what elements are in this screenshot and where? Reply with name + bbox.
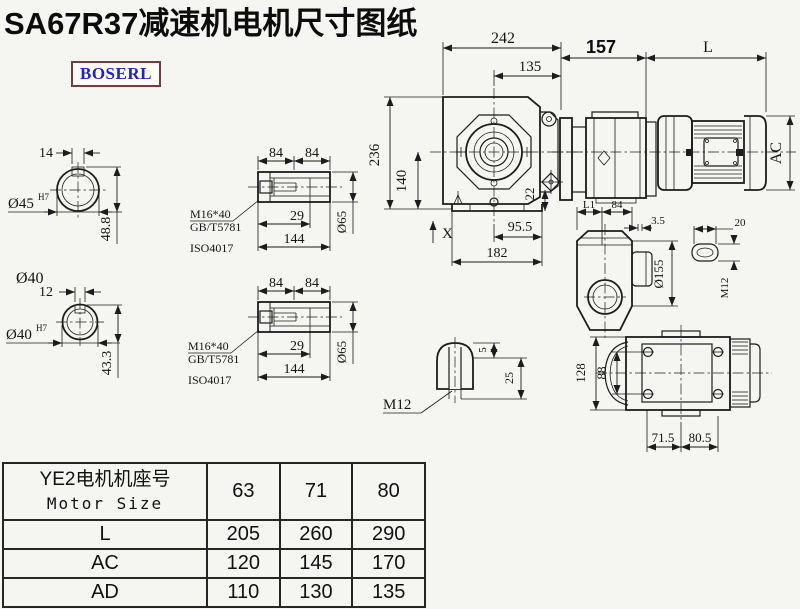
table-header-en: Motor Size <box>4 492 206 515</box>
dim-front-foot: 22 <box>522 188 537 201</box>
view-flange-side: L1 84 Ø155 3.5 20 M12 <box>577 199 746 338</box>
dimension-drawing: 14 Ø45 H7 48.8 Ø40 12 Ø40 H7 43.3 84 84 … <box>0 0 800 460</box>
dim-front-overall-height: 236 <box>367 143 383 166</box>
table-size-71: 71 <box>280 463 353 520</box>
label-standard-gb: GB/T5781 <box>190 220 241 234</box>
table-header-label: YE2电机机座号 Motor Size <box>3 463 207 520</box>
motor-size-table: YE2电机机座号 Motor Size 63 71 80 L 205 260 2… <box>2 462 426 608</box>
dim-shaft-height-45: 48.8 <box>99 217 114 242</box>
dim-bore-45: Ø45 <box>8 196 34 212</box>
view-gearbox-front: 242 135 236 140 22 X 95.5 182 <box>367 30 585 266</box>
value-L-71: 260 <box>280 520 353 549</box>
dim-bore-40: Ø40 <box>6 327 32 343</box>
dim-front-center-height: 140 <box>394 170 410 193</box>
value-AD-63: 110 <box>207 578 280 607</box>
dim-bore-45-fit: H7 <box>38 192 49 202</box>
dim-hub-length: 144 <box>284 232 305 247</box>
dim-side-motor-height: AC <box>768 142 785 164</box>
dim-keyway-width-40: 12 <box>39 285 53 300</box>
dim-bottom-foot-left: 71.5 <box>652 430 675 445</box>
dim-hub-dia2: Ø65 <box>334 341 349 363</box>
dim-bottom-overall-depth: 128 <box>573 363 588 383</box>
table-size-63: 63 <box>207 463 280 520</box>
dim-bottom-bolt-spacing: 88 <box>594 367 609 380</box>
row-label-AD: AD <box>3 578 207 607</box>
label-standard-iso: ISO4017 <box>190 241 233 255</box>
view-hollow-shaft-top: 84 84 M16*40 GB/T5781 ISO4017 29 144 Ø65 <box>190 146 358 255</box>
dim-keyway-width-45: 14 <box>39 146 53 161</box>
value-AD-71: 130 <box>280 578 353 607</box>
dim-bore-40-fit: H7 <box>36 323 47 333</box>
dim-side-motor-length: L <box>703 39 713 56</box>
dim-thread-depth: 29 <box>290 209 304 224</box>
dim-hub-len-b: 84 <box>305 146 319 161</box>
view-plug-detail: 5 25 M12 <box>383 337 527 413</box>
dim-flange-hub-len: L1 <box>583 199 595 211</box>
table-row-AD: AD 110 130 135 <box>3 578 425 607</box>
row-label-L: L <box>3 520 207 549</box>
value-AC-63: 120 <box>207 549 280 578</box>
dim-bottom-foot-right: 80.5 <box>689 430 712 445</box>
dim-thread-depth2: 29 <box>290 339 304 354</box>
dim-plug-lip: 5 <box>477 347 489 353</box>
table-size-80: 80 <box>352 463 425 520</box>
dim-flange-hub-width: 84 <box>612 199 624 211</box>
view-gearmotor-side: 157 L AC <box>552 37 796 203</box>
label-standard-iso2: ISO4017 <box>188 373 231 387</box>
dim-front-center-to-edge: 95.5 <box>508 220 533 235</box>
dim-front-base-width: 182 <box>487 246 508 261</box>
value-L-63: 205 <box>207 520 280 549</box>
dim-slot-gap: 3.5 <box>651 215 665 227</box>
dim-plug-depth: 25 <box>502 372 516 384</box>
dim-front-overall-width: 242 <box>491 30 515 47</box>
view-shaft-end-45: 14 Ø45 H7 48.8 Ø40 <box>8 146 122 287</box>
value-L-80: 290 <box>352 520 425 549</box>
dim-hub-len-a2: 84 <box>269 276 283 291</box>
dim-hub-dia: Ø65 <box>334 211 349 233</box>
dim-front-center-to-face: 135 <box>519 59 542 75</box>
dim-side-gear-length: 157 <box>586 37 616 57</box>
label-plug-thread: M12 <box>383 397 411 413</box>
label-bolt-spec: M16*40 <box>190 207 231 221</box>
table-row-L: L 205 260 290 <box>3 520 425 549</box>
value-AC-80: 170 <box>352 549 425 578</box>
dim-hub-len-a: 84 <box>269 146 283 161</box>
dim-hub-length2: 144 <box>284 362 305 377</box>
dim-hub-len-b2: 84 <box>305 276 319 291</box>
label-standard-gb2: GB/T5781 <box>188 352 239 366</box>
view-hollow-shaft-bottom: 84 84 M16*40 GB/T5781 ISO4017 29 144 Ø65 <box>188 276 358 387</box>
row-label-AC: AC <box>3 549 207 578</box>
dim-slot-thread: M12 <box>719 278 731 299</box>
value-AC-71: 145 <box>280 549 353 578</box>
value-AD-80: 135 <box>352 578 425 607</box>
view-shaft-end-40: 12 Ø40 H7 43.3 <box>6 285 122 378</box>
dim-flange-dia: Ø155 <box>651 260 666 289</box>
label-bolt-spec2: M16*40 <box>188 339 229 353</box>
dim-shaft-height-40: 43.3 <box>100 351 115 376</box>
view-gearbox-bottom: 128 88 71.5 80.5 <box>573 325 772 452</box>
label-x-mark: X <box>442 226 453 242</box>
table-header-row: YE2电机机座号 Motor Size 63 71 80 <box>3 463 425 520</box>
dim-slot-width: 20 <box>735 217 747 229</box>
table-header-cn: YE2电机机座号 <box>4 468 206 492</box>
table-row-AC: AC 120 145 170 <box>3 549 425 578</box>
